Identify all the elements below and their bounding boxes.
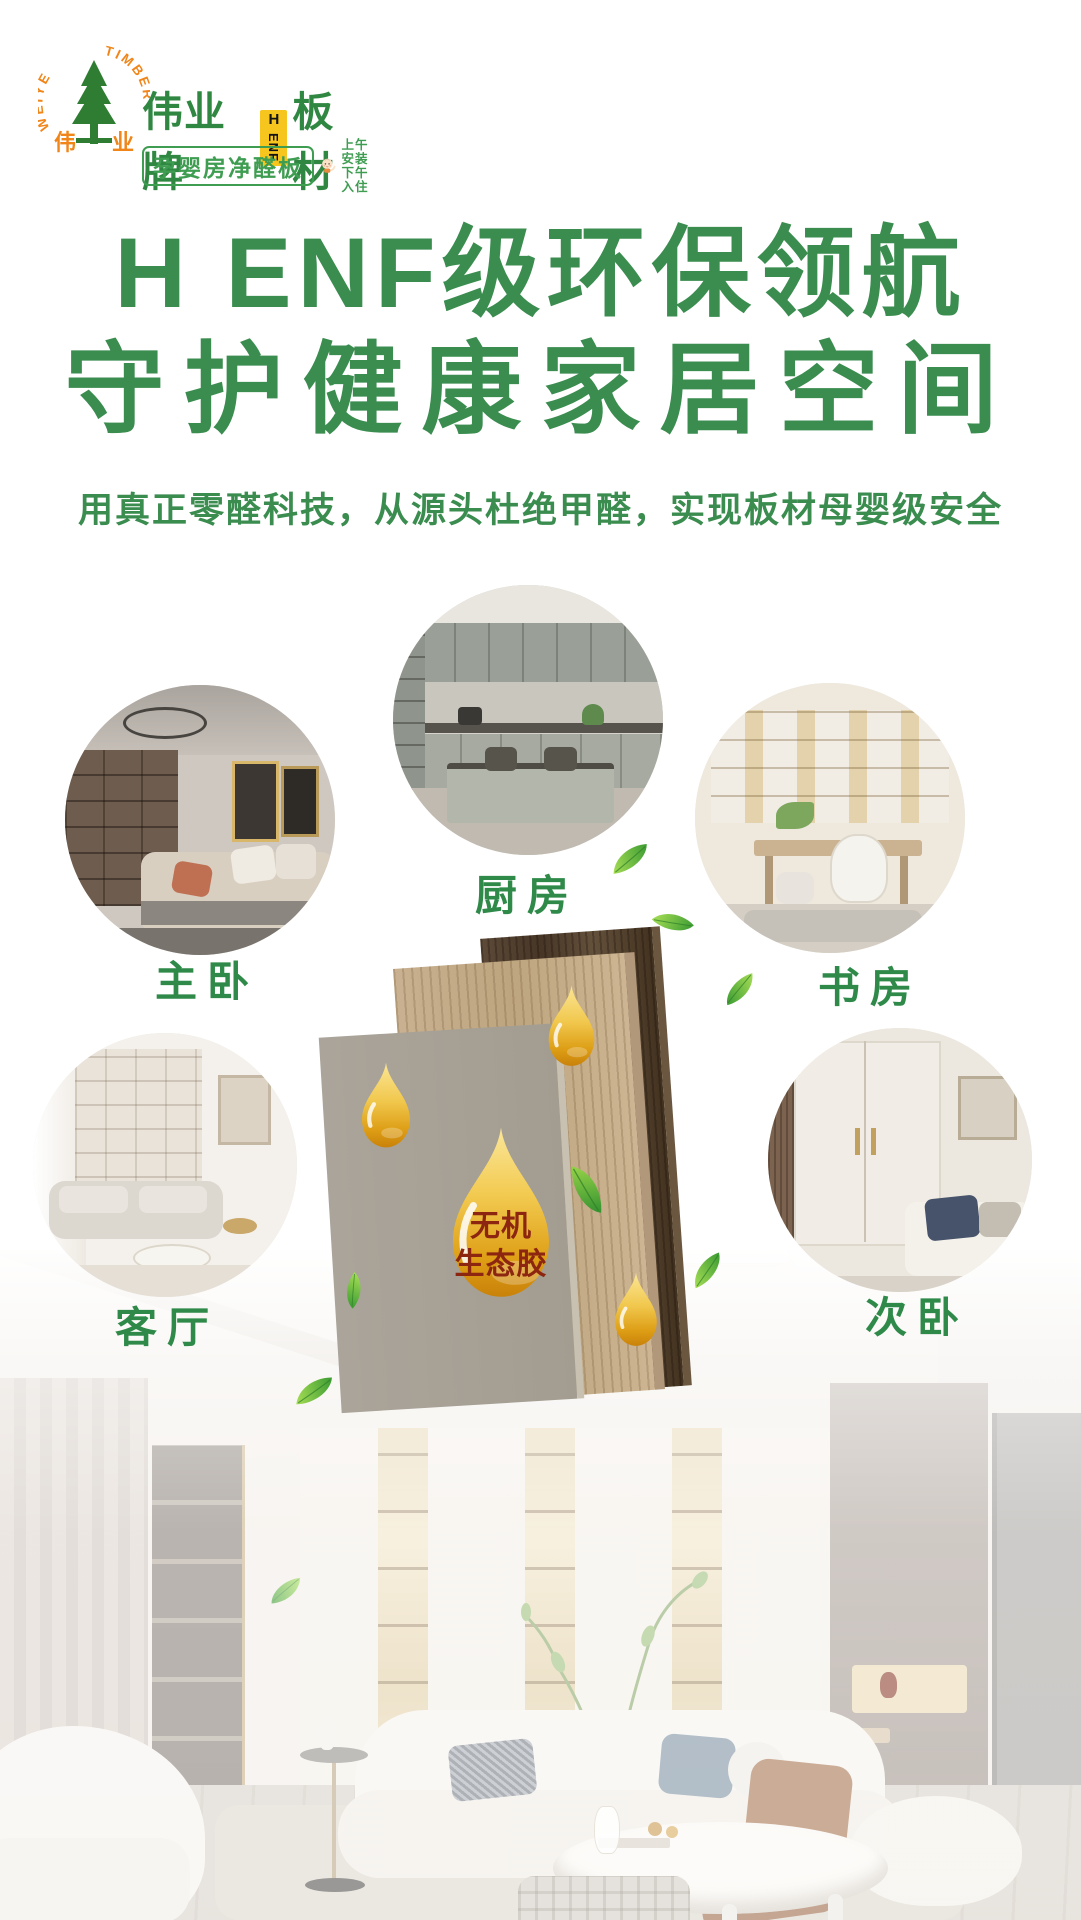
tree-caption-right: 业 — [112, 130, 134, 154]
backsplash — [420, 682, 663, 725]
pillow — [230, 844, 278, 885]
room-label-kitchen: 厨房 — [475, 862, 579, 923]
wood-trim — [768, 1028, 794, 1292]
gold-side-table — [223, 1218, 257, 1234]
room-label-second-bedroom: 次卧 — [865, 1284, 969, 1345]
glue-droplet-icon — [356, 1060, 416, 1152]
room-photo-study — [695, 683, 965, 953]
plant-pot — [582, 704, 604, 726]
bar-stool — [485, 747, 517, 771]
door-handle — [855, 1128, 860, 1154]
navy-pillow — [924, 1194, 981, 1242]
glue-droplet-icon — [610, 1270, 662, 1350]
wall-art — [232, 761, 279, 843]
brand-arc-left-text: WEIYE — [38, 69, 54, 133]
poster-page: WEIYE TIMBER 伟 业 伟业牌 H ENF 板材 孕婴房净醛板 — [0, 0, 1081, 1920]
install-line2: 下午入住 — [342, 166, 370, 194]
gray-pillow — [979, 1202, 1021, 1236]
kitchen-ceiling — [393, 585, 663, 628]
tall-cabinet — [393, 623, 425, 790]
room-label-master-bedroom: 主卧 — [155, 948, 259, 1009]
headline-line2: 守护健康家居空间 — [0, 308, 1081, 453]
countertop — [420, 723, 663, 734]
desk-leg — [765, 856, 773, 905]
install-promise: 上午安装 下午入住 — [342, 138, 370, 194]
room-label-living-room: 客厅 — [115, 1294, 219, 1355]
living-floor — [33, 1265, 297, 1297]
island — [447, 763, 614, 823]
kettle — [458, 707, 482, 726]
room-label-study: 书房 — [818, 954, 922, 1015]
tree-caption-left: 伟 — [54, 130, 76, 154]
glue-droplet-large: 无机 生态胶 — [441, 1122, 561, 1306]
ring-lamp — [123, 707, 207, 739]
room-collage: 主卧 厨房 书房 客厅 次卧 无机 生态胶 — [0, 560, 1081, 1465]
henf-badge-h: H — [268, 112, 279, 128]
sofa-cushion — [139, 1186, 208, 1212]
door-handle — [871, 1128, 876, 1154]
upper-cabinets — [420, 623, 663, 682]
wall-art — [958, 1076, 1017, 1140]
brand-tagline: 孕婴房净醛板 — [142, 146, 314, 186]
shelf-wall — [75, 1049, 202, 1202]
wall-art — [218, 1075, 272, 1144]
blanket — [141, 901, 335, 925]
brand-tagline-row: 孕婴房净醛板 上午安装 下午入住 — [142, 138, 370, 194]
room-photo-second-bedroom — [768, 1028, 1032, 1292]
pillow — [276, 844, 317, 879]
install-line1: 上午安装 — [342, 138, 370, 166]
svg-text:WEIYE: WEIYE — [38, 69, 54, 133]
cabinet-shelf-lines — [711, 710, 949, 823]
glue-droplet-icon — [543, 983, 600, 1070]
glue-line2: 生态胶 — [441, 1246, 561, 1284]
room-photo-kitchen — [393, 585, 663, 855]
wardrobe-door-split — [864, 1041, 866, 1242]
tree-logo-icon: WEIYE TIMBER 伟 业 — [38, 42, 150, 154]
leaf-icon — [290, 1373, 339, 1409]
room-photo-living-room — [33, 1033, 297, 1297]
plant-sprig — [776, 802, 814, 829]
stool — [776, 872, 814, 904]
leaf-icon — [683, 1248, 731, 1292]
sofa-cushion — [59, 1186, 128, 1212]
glue-line1: 无机 — [441, 1208, 561, 1246]
office-chair — [830, 834, 888, 903]
leaf-icon — [717, 970, 763, 1010]
brand-logo-bar: WEIYE TIMBER 伟 业 伟业牌 H ENF 板材 孕婴房净醛板 — [38, 42, 368, 160]
bar-stool — [544, 747, 576, 771]
study-rug — [744, 910, 922, 942]
subtitle: 用真正零醛科技，从源头杜绝甲醛，实现板材母婴级安全 — [0, 482, 1081, 533]
baby-icon — [320, 150, 336, 182]
desk-leg — [900, 856, 908, 905]
glue-droplet-text: 无机 生态胶 — [441, 1208, 561, 1284]
room-photo-master-bedroom — [65, 685, 335, 955]
wall-art — [281, 766, 319, 837]
